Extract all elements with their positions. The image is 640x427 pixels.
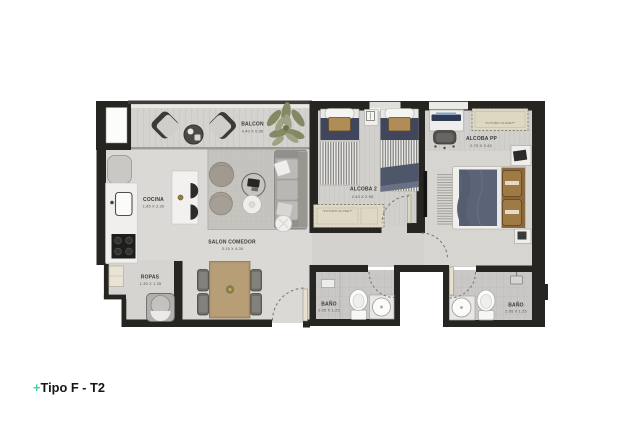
svg-text:BAÑO: BAÑO xyxy=(321,300,337,307)
svg-text:COCINA: COCINA xyxy=(143,197,164,203)
svg-text:*FUTURO CLOSET*: *FUTURO CLOSET* xyxy=(485,121,516,125)
svg-text:ROPAS: ROPAS xyxy=(141,274,160,280)
svg-text:2.40 X 2.95: 2.40 X 2.95 xyxy=(352,195,374,199)
svg-text:SALON COMEDOR: SALON COMEDOR xyxy=(208,239,256,245)
svg-text:BALCON: BALCON xyxy=(241,122,264,128)
svg-text:3.15 X 4.30: 3.15 X 4.30 xyxy=(222,247,244,251)
svg-text:*FUTURO CLOSET*: *FUTURO CLOSET* xyxy=(322,209,353,213)
svg-text:4.40 X 0.90: 4.40 X 0.90 xyxy=(242,130,264,134)
svg-text:BAÑO: BAÑO xyxy=(508,301,524,308)
svg-text:ALCOBA PP: ALCOBA PP xyxy=(466,136,498,142)
svg-text:ALCOBA 2: ALCOBA 2 xyxy=(350,187,377,193)
svg-text:1.85 X 2.30: 1.85 X 2.30 xyxy=(143,205,165,209)
svg-text:2.75 X 3.43: 2.75 X 3.43 xyxy=(470,144,492,148)
svg-text:2.05 X 1.25: 2.05 X 1.25 xyxy=(505,309,527,313)
svg-text:2.05 X 1.25: 2.05 X 1.25 xyxy=(318,308,340,312)
svg-text:1.30 X 1.35: 1.30 X 1.35 xyxy=(140,282,162,286)
